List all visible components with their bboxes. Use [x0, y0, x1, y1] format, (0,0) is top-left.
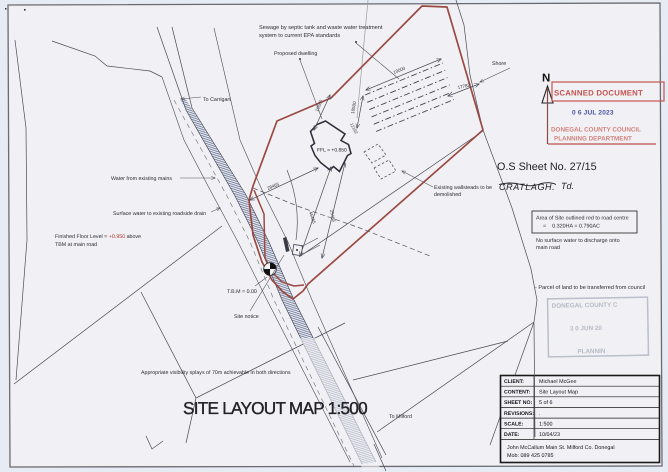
svg-text:DONEGAL COUNTY COUNCIL: DONEGAL COUNTY COUNCIL [551, 127, 641, 134]
svg-text:Td.: Td. [561, 181, 574, 191]
svg-text:Michael McGee: Michael McGee [539, 379, 576, 385]
svg-text:John McCallum Main St. Milford: John McCallum Main St. Milford Co. Doneg… [507, 445, 615, 451]
svg-text:REVISIONS:: REVISIONS: [504, 411, 534, 417]
svg-text:system to current EPA standard: system to current EPA standards [259, 32, 340, 39]
svg-text:SCANNED DOCUMENT: SCANNED DOCUMENT [554, 89, 643, 98]
svg-text:Sewage by septic tank and wast: Sewage by septic tank and waste water tr… [259, 24, 383, 31]
svg-text:CLIENT:: CLIENT: [504, 379, 524, 385]
svg-text:Appropriate visibility splays: Appropriate visibility splays of 70m ach… [141, 370, 291, 376]
svg-text:Shore: Shore [492, 61, 506, 67]
svg-text:10/04/23: 10/04/23 [539, 432, 560, 438]
svg-text:Existing wallsteads to be: Existing wallsteads to be [434, 185, 492, 191]
svg-text:Proposed dwelling: Proposed dwelling [274, 51, 317, 57]
svg-text:DATE:: DATE: [504, 432, 520, 438]
svg-text:Finished Floor Level = +0.950: Finished Floor Level = +0.950 above [55, 234, 141, 240]
svg-text:Mob: 089 425 0785: Mob: 089 425 0785 [507, 453, 553, 459]
svg-text:To Milford: To Milford [389, 414, 412, 420]
svg-text:TBM at main road: TBM at main road [55, 242, 97, 248]
svg-text:SCALE:: SCALE: [504, 421, 524, 427]
svg-text:3 0 JUN 20: 3 0 JUN 20 [570, 325, 602, 333]
svg-text:DONEGAL COUNTY C: DONEGAL COUNTY C [552, 302, 618, 310]
svg-text:Area of Site outlined red to r: Area of Site outlined red to road centre [536, 216, 629, 222]
svg-text:Site Layout Map: Site Layout Map [539, 390, 578, 396]
svg-text:PLANNIN: PLANNIN [577, 348, 606, 355]
svg-text:.: . [539, 411, 541, 417]
svg-text:PLANNING DEPARTMENT: PLANNING DEPARTMENT [554, 136, 632, 143]
svg-text:Surface water to existing road: Surface water to existing roadside drain [113, 211, 206, 217]
svg-text:main road: main road [536, 245, 560, 251]
svg-text:Site notice: Site notice [234, 314, 259, 320]
svg-text:No surface water to discharge: No surface water to discharge onto [536, 238, 620, 244]
svg-text:SITE LAYOUT MAP 1:500: SITE LAYOUT MAP 1:500 [183, 398, 367, 418]
svg-text:1:500: 1:500 [539, 421, 553, 427]
svg-text:5 of 6: 5 of 6 [539, 400, 553, 406]
svg-text:T.B.M = 0.00: T.B.M = 0.00 [227, 289, 257, 295]
svg-text:N: N [542, 73, 550, 85]
svg-text:demolished: demolished [434, 192, 461, 198]
svg-text:Water from existing mains: Water from existing mains [111, 176, 172, 182]
svg-text:- Parcel of land to be transfe: - Parcel of land to be transferred from … [535, 285, 645, 291]
svg-text:= 0.320HA = 0.790AC: = 0.320HA = 0.790AC [543, 224, 600, 230]
svg-text:CONTENT:: CONTENT: [504, 390, 530, 396]
svg-text:SHEET NO:: SHEET NO: [504, 400, 533, 406]
svg-text:O.S Sheet No. 27/15: O.S Sheet No. 27/15 [497, 161, 597, 173]
svg-text:FFL = +0.850: FFL = +0.850 [317, 148, 347, 154]
svg-text:0 6 JUL 2023: 0 6 JUL 2023 [572, 110, 614, 117]
svg-text:To Carrigart: To Carrigart [203, 97, 231, 103]
